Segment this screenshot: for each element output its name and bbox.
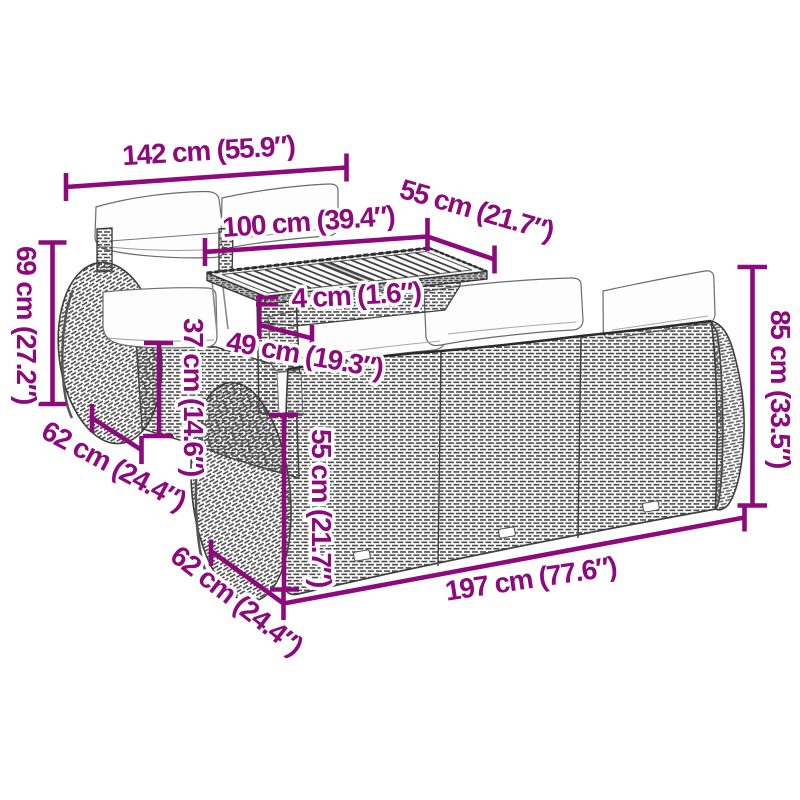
svg-text:85 cm (33.5″): 85 cm (33.5″) [765,310,796,468]
svg-text:37 cm (14.6″): 37 cm (14.6″) [178,318,209,476]
svg-text:69 cm (27.2″): 69 cm (27.2″) [11,246,42,404]
svg-text:55 cm (21.7″): 55 cm (21.7″) [306,429,337,587]
